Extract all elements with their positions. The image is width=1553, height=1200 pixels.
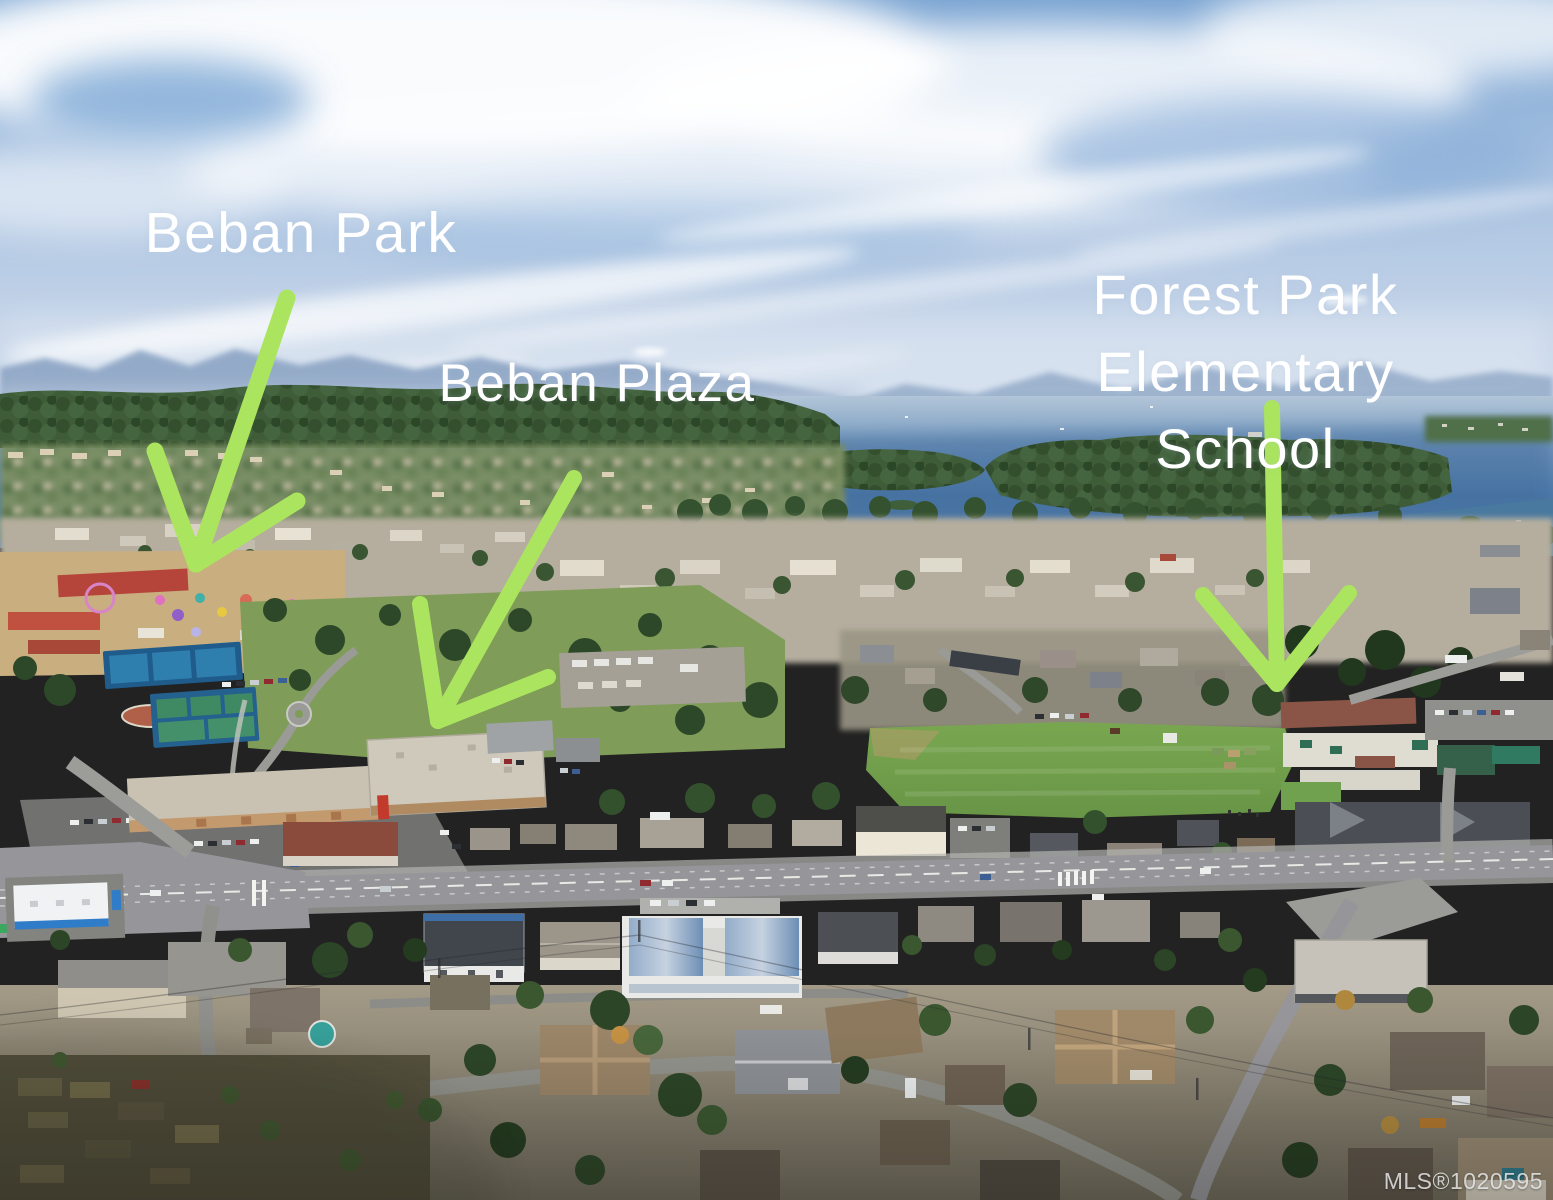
school-parking	[1425, 700, 1553, 740]
label-forest-park-line1: Forest Park	[1003, 256, 1488, 333]
label-forest-park-line2: Elementary School	[1003, 333, 1488, 487]
plaza-sign	[377, 795, 389, 820]
label-beban-plaza: Beban Plaza	[427, 356, 767, 412]
blue-gable-building	[622, 898, 802, 998]
trailer-lot	[559, 647, 746, 708]
label-beban-park: Beban Park	[136, 203, 466, 263]
label-forest-park-elementary: Forest Park Elementary School	[1003, 256, 1488, 487]
gray-building-b	[540, 922, 620, 970]
school-field	[866, 713, 1295, 818]
field-shed	[1163, 733, 1177, 743]
residential-north-of-field	[840, 630, 1285, 730]
house	[58, 960, 186, 1018]
aerial-photo: Beban Park Beban Plaza Forest Park Eleme…	[0, 0, 1553, 1200]
gas-price-sign	[112, 890, 122, 910]
mls-watermark: MLS®1020595	[1384, 1168, 1543, 1195]
aerial-photo-scene	[0, 0, 1553, 1200]
flat-roof-building-right	[1295, 940, 1427, 1003]
dark-roof-building-d	[818, 912, 898, 964]
vignette	[0, 1030, 1553, 1200]
autumn-tree	[1335, 990, 1355, 1010]
